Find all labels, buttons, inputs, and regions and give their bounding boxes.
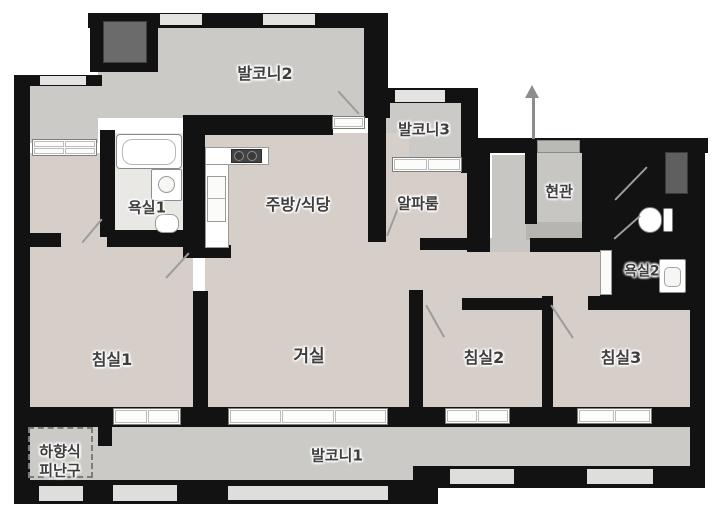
window-bottom-2 [113,485,177,501]
label-bathroom2: 욕실2 [624,263,660,281]
label-living-room: 거실 [293,346,324,367]
label-bedroom3: 침실3 [601,348,642,368]
wall-bath1-left [100,130,115,237]
window-top-2 [263,14,315,25]
label-alpha-room: 알파룸 [397,195,438,214]
window-balcony3-top [395,90,445,102]
wall-living-bedroom2-divider [409,290,423,410]
wall-bedroom2-top [462,298,542,310]
wall-below-alpha [420,238,473,250]
label-entrance: 현관 [545,183,573,202]
wall-alpha-left [368,110,386,242]
label-bedroom1: 침실1 [92,350,133,370]
wall-bath1-bottom [107,230,187,247]
wall-hatch-stub [98,424,112,446]
window-left-wing [40,76,86,85]
wall-bedroom-divider [542,296,553,410]
bathroom1-sink-bowl [158,176,175,193]
label-bedroom2: 침실2 [464,348,505,368]
window-bedroom1-upper [32,139,97,156]
window-bottom-1 [39,486,83,501]
wall-passage-left [467,140,490,252]
window-bedroom3-balcony [577,408,652,424]
kitchen-fridge-divider [207,198,226,199]
window-bottom-4 [450,469,514,484]
balcony2-floor-ext [98,67,150,118]
label-kitchen-dining: 주방/식당 [266,195,331,215]
label-balcony3: 발코니3 [398,121,450,140]
window-bottom-3 [228,486,388,500]
stove-burner-2 [247,151,257,161]
wall-entry-right [582,153,600,239]
wall-living-bedroom1-divider [193,291,208,411]
bathroom2-door [600,250,612,295]
label-escape-hatch: 하향식 피난구 [39,442,80,480]
wall-passage-entry-divider [525,153,537,224]
window-bottom-5 [587,469,653,484]
floor-plan: 발코니2 발코니3 욕실1 주방/식당 알파룸 현관 욕실2 침실1 거실 침실… [0,0,719,512]
label-balcony1: 발코니1 [311,447,363,466]
stove-burner-1 [234,151,244,161]
toilet2-tank [663,208,673,232]
entrance-direction-arrow-shaft [532,97,535,139]
window-living-balcony [228,408,388,425]
left-wing-floor [27,85,98,143]
entry-threshold-floor [490,238,530,252]
entry-door [537,140,580,153]
window-top-1 [160,14,202,25]
corridor-floor [409,250,601,298]
balcony1-floor-right [413,424,693,467]
bathroom2-sink-bowl [664,267,681,287]
window-bedroom1-balcony [113,408,181,425]
duct-shaft [665,152,688,194]
wall-kitchen-top [183,115,333,135]
window-alpha-balcony3 [392,157,462,172]
window-balcony2-kitchen-sill [332,116,365,129]
wall-left-stub [30,233,61,247]
entrance-direction-arrow [525,85,539,98]
kitchen-fridge [207,176,226,222]
label-bathroom1: 욕실1 [128,199,166,218]
label-balcony2: 발코니2 [237,64,292,84]
bathtub-inner [122,139,176,165]
wall-bedroom3-top [588,296,705,310]
window-bedroom2-balcony [445,408,510,424]
ac-unit [103,21,147,63]
toilet2-bowl [638,207,662,233]
